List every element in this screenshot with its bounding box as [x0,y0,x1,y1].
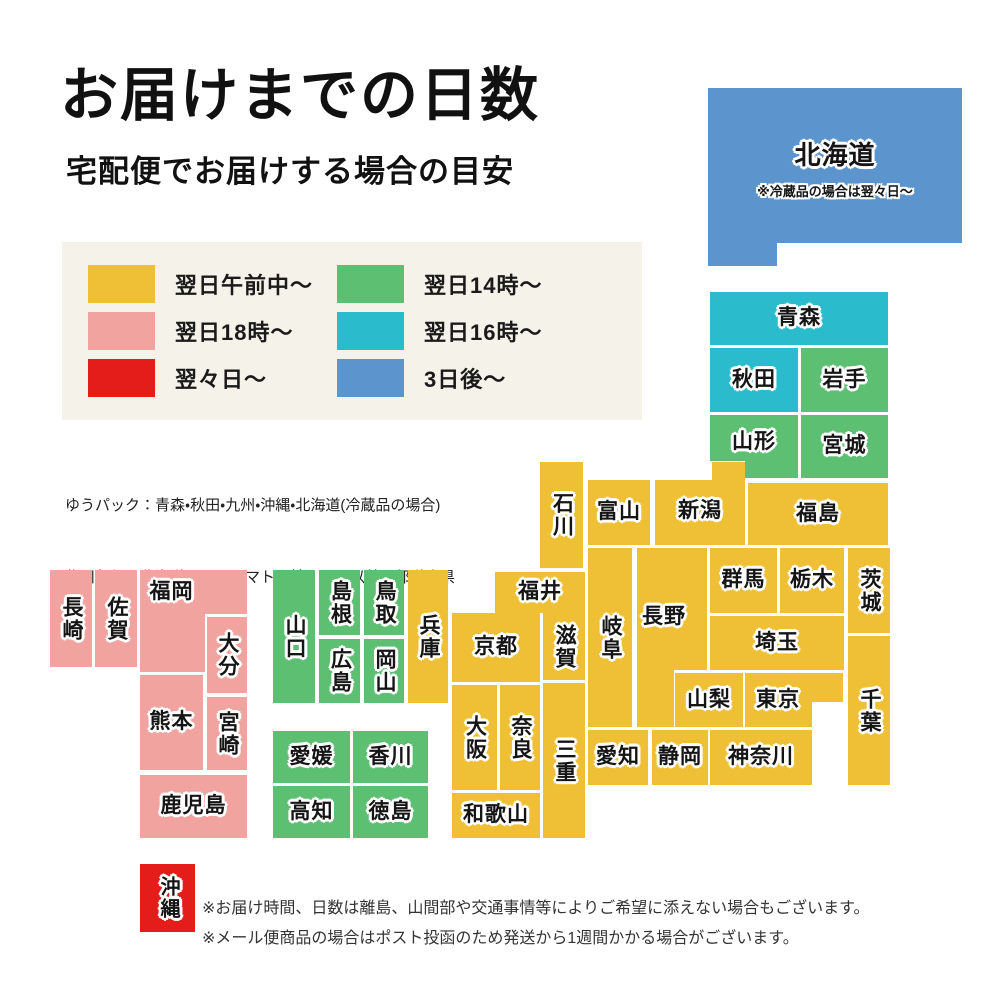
prefecture-kagawa: 香川 [353,731,428,783]
prefecture-label-yamanashi: 山梨 [687,689,731,711]
prefecture-kyoto: 京都 [452,613,540,682]
prefecture-label-iwate: 岩手 [823,369,867,391]
footer-notes: ※お届け時間、日数は離島、山間部や交通事情等によりご希望に添えない場合もございま… [202,894,870,954]
prefecture-label-fukui: 福井 [518,581,562,603]
prefecture-shimane: 島根 [319,570,360,635]
prefecture-label-hokkaido: 北海道 [794,142,875,169]
prefecture-label-nagano: 長野 [642,606,686,628]
prefecture-label-yamagata: 山形 [732,431,776,453]
prefecture-label-saitama: 埼玉 [755,632,799,654]
prefecture-ehime: 愛媛 [273,731,350,783]
japan-map: 北海道※冷蔵品の場合は翌々日〜青森秋田岩手山形宮城新潟石川富山福島福井岐阜長野群… [0,0,1000,1000]
prefecture-toyama: 富山 [588,480,650,545]
prefecture-label-akita: 秋田 [732,369,776,391]
delivery-days-infographic: お届けまでの日数 宅配便でお届けする場合の目安 翌日午前中〜翌日14時〜翌日18… [0,0,1000,1000]
prefecture-niigata: 新潟 [655,462,745,545]
prefecture-label-tokyo: 東京 [756,689,800,711]
prefecture-note-hokkaido: ※冷蔵品の場合は翌々日〜 [757,181,913,200]
prefecture-label-aichi: 愛知 [596,746,640,768]
prefecture-hyogo: 兵庫 [408,570,448,703]
prefecture-label-ibaraki: 茨城 [858,568,880,614]
prefecture-fukui: 福井 [495,572,585,613]
prefecture-kagoshima: 鹿児島 [140,775,247,838]
prefecture-chiba: 千葉 [848,636,890,785]
prefecture-label-okayama: 岡山 [373,648,395,694]
prefecture-label-niigata: 新潟 [678,500,722,522]
prefecture-label-shiga: 滋賀 [553,624,575,670]
prefecture-osaka: 大阪 [452,685,497,790]
prefecture-kanagawa: 神奈川 [710,730,812,785]
prefecture-tochigi: 栃木 [780,548,844,613]
prefecture-label-ishikawa: 石川 [550,492,572,538]
prefecture-yamanashi: 山梨 [675,673,743,727]
prefecture-label-toyama: 富山 [597,501,641,523]
prefecture-label-yamaguchi: 山口 [283,614,305,660]
prefecture-ibaraki: 茨城 [848,548,890,633]
prefecture-hokkaido: 北海道※冷蔵品の場合は翌々日〜 [708,88,962,266]
prefecture-miyazaki: 宮崎 [207,697,247,770]
prefecture-hiroshima: 広島 [319,639,360,703]
prefecture-label-saga: 佐賀 [105,596,127,642]
prefecture-okayama: 岡山 [364,639,404,703]
prefecture-aomori: 青森 [710,292,888,345]
prefecture-label-tottori: 鳥取 [373,580,395,626]
prefecture-yamaguchi: 山口 [273,570,315,703]
prefecture-label-shizuoka: 静岡 [658,746,702,768]
prefecture-label-kanagawa: 神奈川 [728,746,794,768]
prefecture-iwate: 岩手 [801,348,888,412]
prefecture-label-shimane: 島根 [328,580,350,626]
prefecture-label-tokushima: 徳島 [369,801,413,823]
prefecture-okinawa: 沖縄 [140,864,195,932]
prefecture-label-tochigi: 栃木 [790,569,834,591]
prefecture-tokyo: 東京 [745,673,843,727]
prefecture-label-kagawa: 香川 [369,746,413,768]
prefecture-aichi: 愛知 [588,730,648,785]
prefecture-label-osaka: 大阪 [463,715,485,761]
prefecture-label-ehime: 愛媛 [290,746,334,768]
prefecture-kochi: 高知 [273,786,350,838]
prefecture-label-gifu: 岐阜 [599,615,621,661]
prefecture-label-kagoshima: 鹿児島 [161,795,227,817]
prefecture-nara: 奈良 [500,685,540,790]
prefecture-label-fukuoka: 福岡 [150,581,194,603]
prefecture-label-oita: 大分 [216,632,238,678]
footer-note-line2: ※メール便商品の場合はポスト投函のため発送から1週間かかる場合がございます。 [202,924,870,954]
prefecture-label-miyazaki: 宮崎 [216,711,238,757]
prefecture-label-fukushima: 福島 [796,503,840,525]
prefecture-label-kyoto: 京都 [474,636,518,658]
prefecture-wakayama: 和歌山 [452,793,540,838]
prefecture-fukushima: 福島 [748,483,888,545]
prefecture-miyagi: 宮城 [801,415,888,478]
prefecture-kumamoto: 熊本 [140,675,203,770]
prefecture-label-hiroshima: 広島 [328,648,350,694]
prefecture-ishikawa: 石川 [540,462,583,568]
prefecture-gifu: 岐阜 [588,548,632,727]
prefecture-gunma: 群馬 [710,548,777,613]
prefecture-label-aomori: 青森 [777,307,821,329]
prefecture-label-kumamoto: 熊本 [150,711,194,733]
prefecture-nagasaki: 長崎 [50,570,92,667]
prefecture-label-chiba: 千葉 [858,688,880,734]
prefecture-label-kochi: 高知 [290,801,334,823]
prefecture-shiga: 滋賀 [543,613,585,680]
prefecture-saga: 佐賀 [95,570,137,667]
prefecture-label-nagasaki: 長崎 [60,596,82,642]
prefecture-label-wakayama: 和歌山 [463,804,529,826]
prefecture-label-mie: 三重 [553,738,575,784]
prefecture-oita: 大分 [207,617,247,693]
prefecture-label-gunma: 群馬 [722,569,766,591]
prefecture-label-nara: 奈良 [509,715,531,761]
prefecture-label-hyogo: 兵庫 [417,614,439,660]
footer-note-line1: ※お届け時間、日数は離島、山間部や交通事情等によりご希望に添えない場合もございま… [202,894,870,924]
prefecture-shizuoka: 静岡 [652,730,708,785]
prefecture-label-okinawa: 沖縄 [157,876,178,920]
prefecture-tottori: 鳥取 [364,570,404,635]
prefecture-label-miyagi: 宮城 [823,435,867,457]
prefecture-tokushima: 徳島 [353,786,428,838]
prefecture-mie: 三重 [543,683,585,838]
prefecture-saitama: 埼玉 [710,616,844,670]
prefecture-akita: 秋田 [710,348,798,412]
